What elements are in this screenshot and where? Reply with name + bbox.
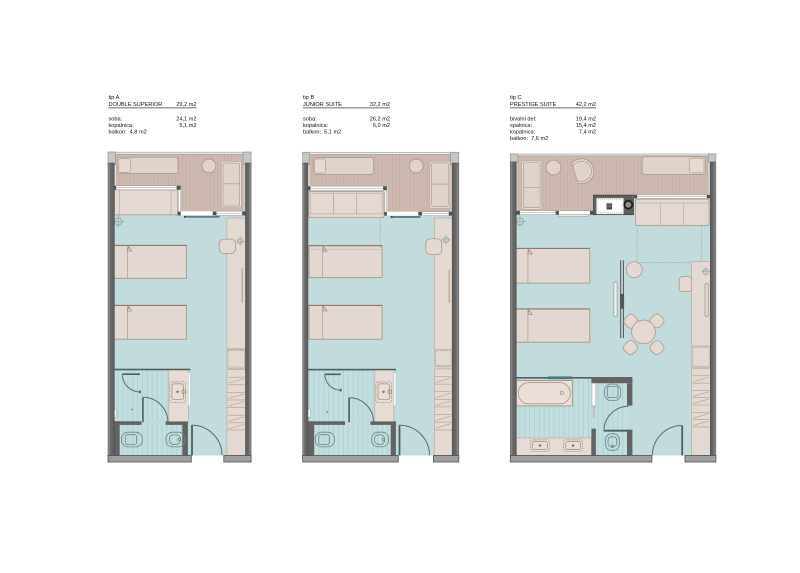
svg-text:5,1 m2: 5,1 m2 <box>179 123 196 129</box>
svg-text:24,1 m2: 24,1 m2 <box>176 116 196 122</box>
svg-text:tip B: tip B <box>303 95 314 101</box>
svg-text:balkon: 7,6 m2: balkon: 7,6 m2 <box>510 136 548 142</box>
svg-text:42,2 m2: 42,2 m2 <box>576 102 596 108</box>
svg-text:balkon: 4,8 m2: balkon: 4,8 m2 <box>109 129 147 135</box>
svg-text:19,4 m2: 19,4 m2 <box>576 116 596 122</box>
svg-text:6,0 m2: 6,0 m2 <box>373 123 390 129</box>
svg-text:29,2 m2: 29,2 m2 <box>176 102 196 108</box>
svg-text:spalnica:: spalnica: <box>510 123 533 129</box>
svg-text:JUNIOR SUITE: JUNIOR SUITE <box>303 102 342 108</box>
svg-text:kopalnica:: kopalnica: <box>510 129 536 135</box>
svg-text:kopalnica:: kopalnica: <box>109 123 135 129</box>
svg-text:tip C: tip C <box>510 95 522 101</box>
svg-text:15,4 m2: 15,4 m2 <box>576 123 596 129</box>
svg-text:26,2 m2: 26,2 m2 <box>370 116 390 122</box>
svg-text:PRESTIGE SUITE: PRESTIGE SUITE <box>510 102 557 108</box>
svg-text:tip A: tip A <box>109 95 120 101</box>
svg-text:kopalnica:: kopalnica: <box>303 123 329 129</box>
svg-text:soba:: soba: <box>303 116 317 122</box>
svg-text:DOUBLE SUPERIOR: DOUBLE SUPERIOR <box>109 102 163 108</box>
svg-text:7,4 m2: 7,4 m2 <box>579 129 596 135</box>
svg-text:balkon: 5,1 m2: balkon: 5,1 m2 <box>303 129 341 135</box>
svg-text:soba:: soba: <box>109 116 123 122</box>
svg-text:bivalni del:: bivalni del: <box>510 116 537 122</box>
svg-text:32,2 m2: 32,2 m2 <box>370 102 390 108</box>
